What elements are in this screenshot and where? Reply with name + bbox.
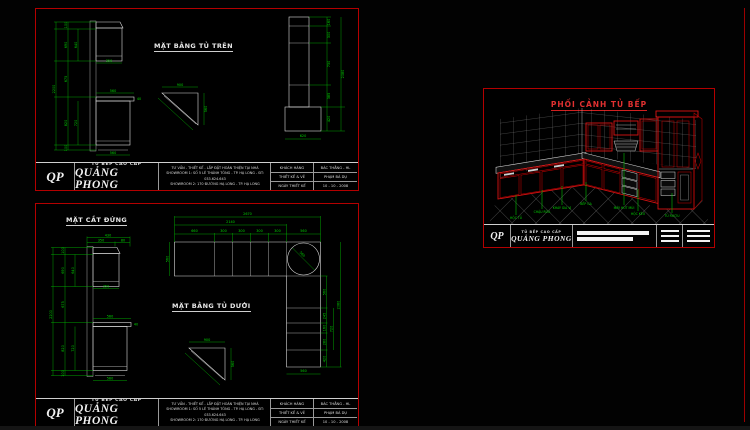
title-block-perspective: QP TỦ BẾP CAO CẤP QUẢNG PHONG — [484, 224, 714, 247]
svg-text:430: 430 — [105, 234, 111, 238]
svg-text:300: 300 — [274, 229, 280, 233]
svg-text:160: 160 — [327, 19, 331, 25]
svg-text:2080: 2080 — [337, 301, 341, 310]
svg-text:100: 100 — [61, 370, 65, 376]
svg-text:620: 620 — [300, 134, 306, 138]
svg-text:560: 560 — [110, 89, 116, 93]
part-label: TỦ RƯỢU — [663, 213, 679, 218]
title-block: QP TỦ BẾP CAO CẤP QUẢNG PHONG TƯ VẤN - T… — [36, 398, 358, 426]
row-labels: KHÁCH HÀNG THIẾT KẾ & VẼ NGÀY THIẾT KẾ — [270, 163, 313, 190]
svg-text:2080: 2080 — [341, 70, 345, 79]
svg-text:560: 560 — [299, 251, 306, 258]
svg-text:350: 350 — [98, 239, 104, 243]
svg-text:160: 160 — [323, 325, 327, 331]
svg-text:2670: 2670 — [243, 212, 252, 216]
row-values: BÁC THẮNG - HL PHẠM BÁ DỤ 10 - 10 - 2008 — [313, 163, 357, 190]
dim-total-height: 2200 — [52, 85, 56, 94]
label-bars — [656, 225, 682, 247]
svg-text:350: 350 — [106, 59, 112, 63]
row-values: BÁC THẮNG - HL PHẠM BÁ DỤ 10 - 10 - 2008 — [313, 399, 357, 426]
corner-shelf-drawing: 900 560 — [154, 79, 214, 137]
company-info: TƯ VẤN - THIẾT KẾ - LẮP ĐẶT HOÀN THIỆN T… — [158, 163, 271, 190]
svg-text:300: 300 — [220, 229, 226, 233]
svg-text:730: 730 — [327, 61, 331, 67]
svg-text:100: 100 — [61, 247, 65, 253]
section-label: MẶT CẮT ĐỨNG — [66, 216, 127, 226]
svg-text:560: 560 — [107, 377, 113, 381]
svg-text:560: 560 — [110, 151, 116, 155]
svg-text:300: 300 — [238, 229, 244, 233]
svg-text:350: 350 — [103, 285, 109, 289]
svg-text:560: 560 — [166, 256, 170, 262]
sheet-upper-cabinet-plan: 2200 100 690 675 820 100 640 720 350 560… — [35, 8, 359, 191]
svg-text:560: 560 — [107, 315, 113, 319]
info-bars — [572, 225, 656, 247]
upper-plan-strip-drawing: 160 300 730 385 420 2080 620 — [271, 9, 353, 149]
svg-text:300: 300 — [256, 229, 262, 233]
part-label: KHAY GIA VỊ — [553, 206, 572, 210]
svg-text:675: 675 — [61, 301, 65, 307]
svg-text:40: 40 — [134, 323, 138, 327]
svg-text:420: 420 — [327, 116, 331, 122]
svg-text:385: 385 — [327, 93, 331, 99]
section-drawing: 430 350 80 2200 100 690 675 820 100 640 … — [41, 230, 146, 390]
svg-text:420: 420 — [323, 356, 327, 362]
svg-text:40: 40 — [137, 97, 141, 101]
svg-text:690: 690 — [64, 42, 68, 48]
plan-label-upper: MẶT BẰNG TỦ TRÊN — [154, 42, 233, 52]
svg-text:245: 245 — [323, 313, 327, 319]
part-label: MÁY HÚT MÙI — [614, 205, 635, 210]
plan-label-lower: MẶT BẰNG TỦ DƯỚI — [172, 302, 251, 312]
part-label: HỘC KÉO — [631, 211, 646, 216]
corner-shelf-drawing-2: 900 560 — [181, 334, 241, 392]
svg-text:560: 560 — [300, 229, 306, 233]
part-label: CHẬU RỬA — [534, 209, 552, 214]
svg-text:300: 300 — [327, 32, 331, 38]
svg-text:820: 820 — [64, 120, 68, 126]
row-labels: KHÁCH HÀNG THIẾT KẾ & VẼ NGÀY THIẾT KẾ — [270, 399, 313, 426]
svg-text:100: 100 — [64, 145, 68, 151]
svg-text:2200: 2200 — [49, 310, 53, 319]
qp-logo: QP — [36, 399, 74, 426]
svg-text:560: 560 — [323, 289, 327, 295]
qp-logo: QP — [36, 163, 74, 190]
qp-logo: QP — [484, 225, 510, 247]
bottom-strip — [0, 426, 750, 430]
perspective-scene: HỘC TỦ CHẬU RỬA KHAY GIA VỊ BẾP GA MÁY H… — [488, 103, 710, 225]
svg-text:560: 560 — [231, 361, 235, 367]
company-cell: TỦ BẾP CAO CẤP QUẢNG PHONG — [74, 399, 158, 426]
value-bars — [682, 225, 713, 247]
elevation-drawing: 2200 100 690 675 820 100 640 720 350 560… — [44, 9, 149, 159]
cad-canvas: 2200 100 690 675 820 100 640 720 350 560… — [0, 0, 750, 430]
svg-text:900: 900 — [204, 338, 210, 342]
svg-text:675: 675 — [64, 76, 68, 82]
range-hood — [614, 141, 638, 151]
svg-text:2140: 2140 — [226, 220, 235, 224]
title-block: QP TỦ BẾP CAO CẤP QUẢNG PHONG TƯ VẤN - T… — [36, 162, 358, 190]
clipped-sheet-edge — [744, 8, 745, 422]
svg-text:560: 560 — [300, 369, 306, 373]
svg-text:560: 560 — [204, 106, 208, 112]
svg-text:640: 640 — [71, 267, 75, 273]
svg-text:820: 820 — [61, 345, 65, 351]
company-cell: TỦ BẾP CAO CẤP QUẢNG PHONG — [510, 225, 572, 247]
svg-text:640: 640 — [74, 42, 78, 48]
svg-text:720: 720 — [330, 326, 334, 332]
company-cell: TỦ BẾP CAO CẤP QUẢNG PHONG — [74, 163, 158, 190]
company-info: TƯ VẤN - THIẾT KẾ - LẮP ĐẶT HOÀN THIỆN T… — [158, 399, 271, 426]
svg-text:280: 280 — [323, 339, 327, 345]
sheet-lower-cabinet-plan: MẶT CẮT ĐỨNG 430 350 80 — [35, 203, 359, 427]
svg-text:900: 900 — [177, 83, 183, 87]
svg-text:690: 690 — [61, 267, 65, 273]
svg-text:720: 720 — [71, 345, 75, 351]
svg-text:100: 100 — [64, 22, 68, 28]
svg-text:660: 660 — [191, 229, 197, 233]
svg-text:720: 720 — [74, 120, 78, 126]
svg-text:80: 80 — [121, 239, 125, 243]
sheet-perspective: PHỐI CẢNH TỦ BẾP — [483, 88, 715, 248]
part-label: HỘC TỦ — [510, 215, 522, 220]
